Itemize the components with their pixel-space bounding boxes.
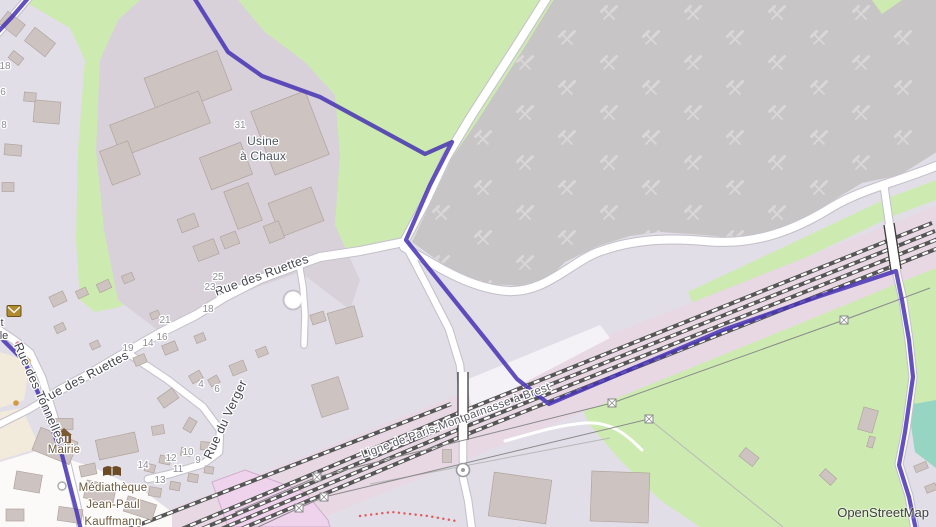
- map-label: 16: [156, 332, 168, 343]
- map-label: 13: [154, 475, 166, 486]
- map-label: Kauffmann: [84, 516, 141, 527]
- power-pylon-icon: [313, 473, 321, 481]
- power-pylon-icon: [840, 316, 848, 324]
- building: [148, 487, 161, 498]
- building: [2, 183, 14, 192]
- map-label: 6: [0, 87, 6, 98]
- power-pylon-icon: [320, 493, 328, 501]
- map-label: Usine: [247, 134, 279, 148]
- map-label: 11: [173, 464, 184, 475]
- map-canvas[interactable]: Rue des RuettesRue des RuettesRue du Ver…: [0, 0, 936, 527]
- building: [187, 473, 198, 483]
- map-label: le: [0, 330, 8, 342]
- building: [33, 100, 61, 124]
- map-label: Jean-Paul: [86, 499, 140, 511]
- map-label: 18: [0, 61, 11, 72]
- map-label: à Chaux: [240, 149, 286, 163]
- power-pylon-icon: [295, 504, 303, 512]
- map-label: 10: [182, 447, 194, 458]
- map-label: 14: [142, 338, 154, 349]
- map-label: 19: [122, 343, 134, 354]
- building: [204, 466, 214, 474]
- attribution: OpenStreetMap: [837, 505, 929, 520]
- map-label: 9: [195, 455, 201, 466]
- map-label: 8: [1, 120, 7, 131]
- building: [151, 425, 164, 436]
- map-label: 18: [202, 304, 214, 315]
- map-label: 12: [165, 453, 177, 464]
- poi-dot: [13, 400, 19, 406]
- building: [169, 481, 180, 491]
- osm-map[interactable]: Rue des RuettesRue des RuettesRue du Ver…: [0, 0, 936, 527]
- power-pylon-icon: [608, 399, 616, 407]
- post-envelope-icon: [7, 306, 21, 317]
- building: [24, 92, 37, 102]
- map-label: t: [0, 317, 3, 329]
- building: [443, 450, 452, 463]
- map-label: 23: [204, 282, 216, 293]
- map-label: 14: [137, 460, 149, 471]
- building: [488, 472, 552, 524]
- building: [4, 144, 22, 156]
- turning-circle: [285, 292, 302, 309]
- map-label: Mairie: [48, 444, 81, 456]
- building: [590, 471, 650, 523]
- mini-roundabout-dot: [461, 468, 465, 472]
- map-viewport[interactable]: Rue des RuettesRue des RuettesRue du Ver…: [0, 0, 936, 527]
- attribution-openstreetmap[interactable]: OpenStreetMap: [837, 505, 929, 520]
- mini-roundabout: [58, 482, 66, 490]
- map-label: Médiathèque: [79, 482, 148, 494]
- map-label: 31: [234, 120, 246, 131]
- map-label: 4: [198, 379, 204, 390]
- map-label: 6: [214, 384, 220, 395]
- map-label: 21: [159, 315, 171, 326]
- building: [6, 509, 24, 521]
- power-pylon-icon: [645, 415, 653, 423]
